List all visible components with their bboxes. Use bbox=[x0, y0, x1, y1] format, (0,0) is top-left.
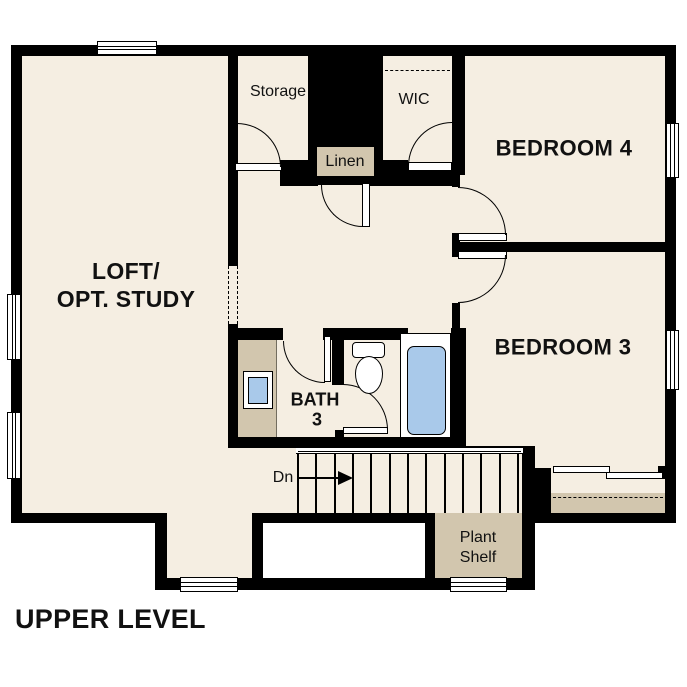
wall-hall-east-stub-bottom bbox=[452, 303, 460, 330]
window-loft-left-upper bbox=[7, 294, 21, 360]
stair-tread bbox=[425, 454, 427, 513]
window-muntin bbox=[181, 582, 237, 583]
cased-opening-dashed bbox=[228, 266, 238, 324]
stair-tread bbox=[297, 454, 299, 513]
room-label-storage: Storage bbox=[250, 82, 306, 102]
wall-hall-north-a bbox=[370, 160, 408, 186]
closet-bypass-door-2 bbox=[606, 472, 663, 479]
room-label-loft-line2: OPT. STUDY bbox=[57, 285, 195, 313]
room-label-plant-shelf-line2: Shelf bbox=[460, 548, 496, 568]
stair-tread bbox=[517, 454, 519, 513]
room-label-bath-line1: BATH bbox=[291, 390, 340, 411]
stair-tread bbox=[480, 454, 482, 513]
wall-bath-north bbox=[238, 328, 283, 340]
closet-shelf bbox=[551, 493, 665, 513]
stair-tread bbox=[334, 454, 336, 513]
stair-rail-line bbox=[298, 451, 521, 452]
window-muntin bbox=[98, 46, 156, 47]
stair-tread bbox=[444, 454, 446, 513]
window-muntin bbox=[12, 413, 13, 478]
stairs-down-label: Dn bbox=[273, 468, 293, 488]
stair-tread bbox=[315, 454, 317, 513]
room-label-bedroom4: BEDROOM 4 bbox=[496, 136, 633, 163]
window-muntin bbox=[670, 124, 671, 177]
wall-bottom-left bbox=[11, 513, 167, 523]
wall-void-right bbox=[425, 523, 435, 590]
window-muntin bbox=[674, 124, 675, 177]
window-loft-left-lower bbox=[7, 412, 21, 479]
window-muntin bbox=[15, 295, 16, 359]
room-label-bedroom3: BEDROOM 3 bbox=[495, 335, 632, 362]
window-muntin bbox=[674, 331, 675, 389]
wall-compartment-north bbox=[323, 328, 408, 340]
window-bedroom3 bbox=[666, 330, 679, 390]
sink-basin bbox=[248, 377, 268, 404]
window-muntin bbox=[451, 586, 506, 587]
door-leaf-linen bbox=[362, 183, 370, 227]
window-muntin bbox=[15, 413, 16, 478]
wall-bump-right bbox=[252, 513, 263, 590]
wall-hall-north-b bbox=[408, 171, 455, 186]
plan-title: UPPER LEVEL bbox=[15, 604, 206, 635]
wall-bottom-right bbox=[533, 513, 676, 523]
wall-hall-east-stub-top bbox=[452, 175, 460, 187]
room-label-bath-line2: 3 bbox=[312, 410, 322, 431]
window-bump-out bbox=[180, 577, 238, 592]
window-bedroom4 bbox=[666, 123, 679, 178]
stair-tread bbox=[499, 454, 501, 513]
wall-loft-east-lower bbox=[228, 323, 238, 446]
wall-bedroom3-west bbox=[451, 328, 466, 446]
stair-rail bbox=[296, 446, 523, 454]
wall-under-stairs bbox=[252, 513, 435, 523]
stair-tread bbox=[462, 454, 464, 513]
window-loft-top bbox=[97, 41, 157, 55]
stair-tread bbox=[389, 454, 391, 513]
door-leaf-bath bbox=[324, 336, 331, 382]
room-label-plant-shelf-line1: Plant bbox=[460, 528, 496, 548]
window-muntin bbox=[181, 586, 237, 587]
closet-floor bbox=[551, 479, 665, 493]
room-label-linen: Linen bbox=[325, 152, 364, 172]
window-muntin bbox=[451, 582, 506, 583]
room-label-loft-line1: LOFT/ bbox=[92, 257, 160, 285]
stair-tread bbox=[407, 454, 409, 513]
window-muntin bbox=[98, 49, 156, 50]
stairs-down-arrow-head bbox=[338, 471, 353, 485]
bathtub bbox=[407, 346, 446, 435]
wall-bath-divider bbox=[332, 340, 344, 385]
room-label-wic: WIC bbox=[398, 90, 429, 110]
wic-rod-dashed bbox=[385, 70, 450, 71]
stair-tread bbox=[370, 454, 372, 513]
wall-right bbox=[665, 45, 676, 523]
wall-bedroom4-west bbox=[452, 45, 465, 175]
bump-out-floor bbox=[167, 513, 252, 578]
floor-plan: LOFT/ OPT. STUDY BEDROOM 4 BEDROOM 3 BAT… bbox=[0, 0, 687, 687]
stairs-down-arrow-line bbox=[298, 477, 340, 479]
window-plant-shelf bbox=[450, 577, 507, 592]
window-muntin bbox=[670, 331, 671, 389]
closet-bypass-door-1 bbox=[553, 466, 610, 473]
window-muntin bbox=[12, 295, 13, 359]
closet-rod-dashed bbox=[553, 497, 663, 498]
